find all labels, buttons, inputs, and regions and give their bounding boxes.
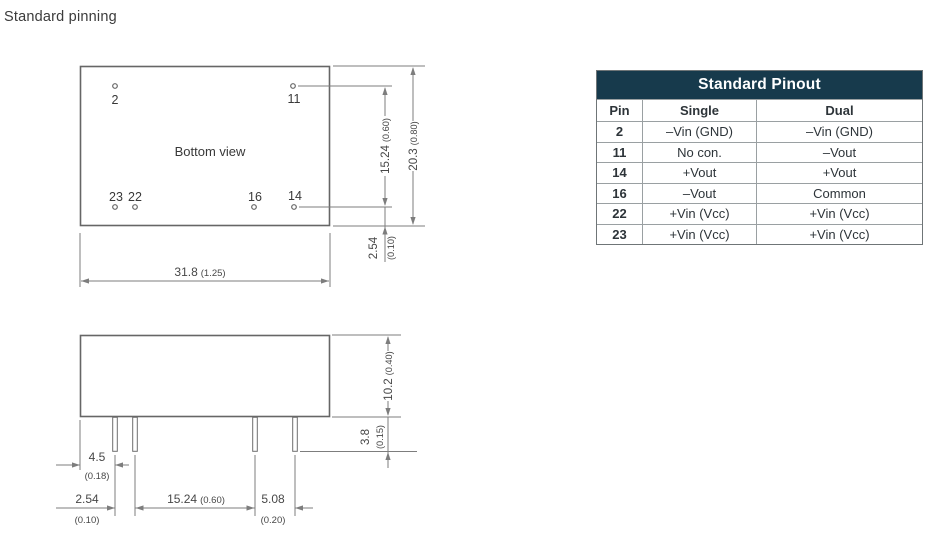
- pin-leg: [293, 417, 298, 451]
- dim-right-pin-spacing-inch: (0.20): [261, 515, 286, 526]
- pin-leg: [113, 417, 118, 451]
- pin-11-label: 11: [288, 92, 301, 106]
- table-cell-pin: 16: [597, 183, 642, 204]
- pin-14-label: 14: [288, 189, 302, 203]
- table-cell-pin: 11: [597, 142, 642, 163]
- pinout-table-title: Standard Pinout: [597, 71, 922, 99]
- dim-pin-length-mm: 3.8: [360, 429, 372, 445]
- dim-left-edge-to-pin-mm: 4.5: [89, 450, 106, 464]
- table-cell-dual: –Vout: [756, 142, 922, 163]
- pin-16-label: 16: [248, 190, 262, 204]
- dim-pin-edge-offset-mm: 2.54: [368, 236, 380, 259]
- table-cell-pin: 23: [597, 224, 642, 245]
- dim-pin-group-spacing: 15.24(0.60): [167, 492, 225, 506]
- pin-leg: [253, 417, 258, 451]
- pin-2-marker: [113, 84, 118, 89]
- dim-pin-pitch-mm: 2.54: [75, 492, 99, 506]
- table-cell-dual: –Vin (GND): [756, 121, 922, 142]
- table-cell-pin: 14: [597, 162, 642, 183]
- dim-right-pin-spacing-mm: 5.08: [261, 492, 285, 506]
- pin-14-marker: [292, 205, 297, 210]
- dim-left-edge-to-pin-inch: (0.18): [85, 471, 110, 482]
- table-cell-single: +Vin (Vcc): [642, 224, 756, 245]
- bottom-view-caption: Bottom view: [175, 144, 246, 159]
- pin-leg: [133, 417, 138, 451]
- pin-11-marker: [291, 84, 296, 89]
- dim-pin-length-inch: (0.15): [375, 425, 385, 449]
- column-header-single: Single: [642, 99, 756, 121]
- pin-2-label: 2: [112, 93, 119, 107]
- dim-pin-row-spacing: 15.24(0.60): [380, 118, 392, 174]
- table-cell-pin: 2: [597, 121, 642, 142]
- column-header-pin: Pin: [597, 99, 642, 121]
- dim-pin-pitch-inch: (0.10): [75, 515, 100, 526]
- table-cell-dual: +Vin (Vcc): [756, 203, 922, 224]
- pin-22-marker: [133, 205, 138, 210]
- bottom-view: 2 11 23 22 16 14 Bottom view: [81, 67, 330, 226]
- side-view: [81, 336, 330, 452]
- table-cell-pin: 22: [597, 203, 642, 224]
- dim-body-depth: 20.3(0.80): [408, 121, 420, 170]
- table-cell-single: +Vin (Vcc): [642, 203, 756, 224]
- pinout-table-grid: Pin Single Dual 2 –Vin (GND) –Vin (GND) …: [597, 99, 922, 244]
- dim-body-width: 31.8(1.25): [174, 265, 225, 279]
- pin-22-label: 22: [128, 190, 142, 204]
- pinout-table: Standard Pinout Pin Single Dual 2 –Vin (…: [596, 70, 923, 245]
- table-cell-dual: Common: [756, 183, 922, 204]
- pin-23-marker: [113, 205, 118, 210]
- column-header-dual: Dual: [756, 99, 922, 121]
- table-cell-single: –Vin (GND): [642, 121, 756, 142]
- dim-body-height: 10.2(0.40): [383, 351, 395, 400]
- table-cell-dual: +Vout: [756, 162, 922, 183]
- datasheet-page: Standard pinning 2 11 23 22 16 14 Bottom…: [0, 0, 926, 541]
- table-cell-single: No con.: [642, 142, 756, 163]
- side-view-pins: [113, 417, 298, 451]
- table-cell-single: –Vout: [642, 183, 756, 204]
- pin-16-marker: [252, 205, 257, 210]
- table-cell-single: +Vout: [642, 162, 756, 183]
- dim-pin-edge-offset-inch: (0.10): [386, 236, 396, 260]
- pin-23-label: 23: [109, 190, 123, 204]
- side-view-outline: [81, 336, 330, 417]
- table-cell-dual: +Vin (Vcc): [756, 224, 922, 245]
